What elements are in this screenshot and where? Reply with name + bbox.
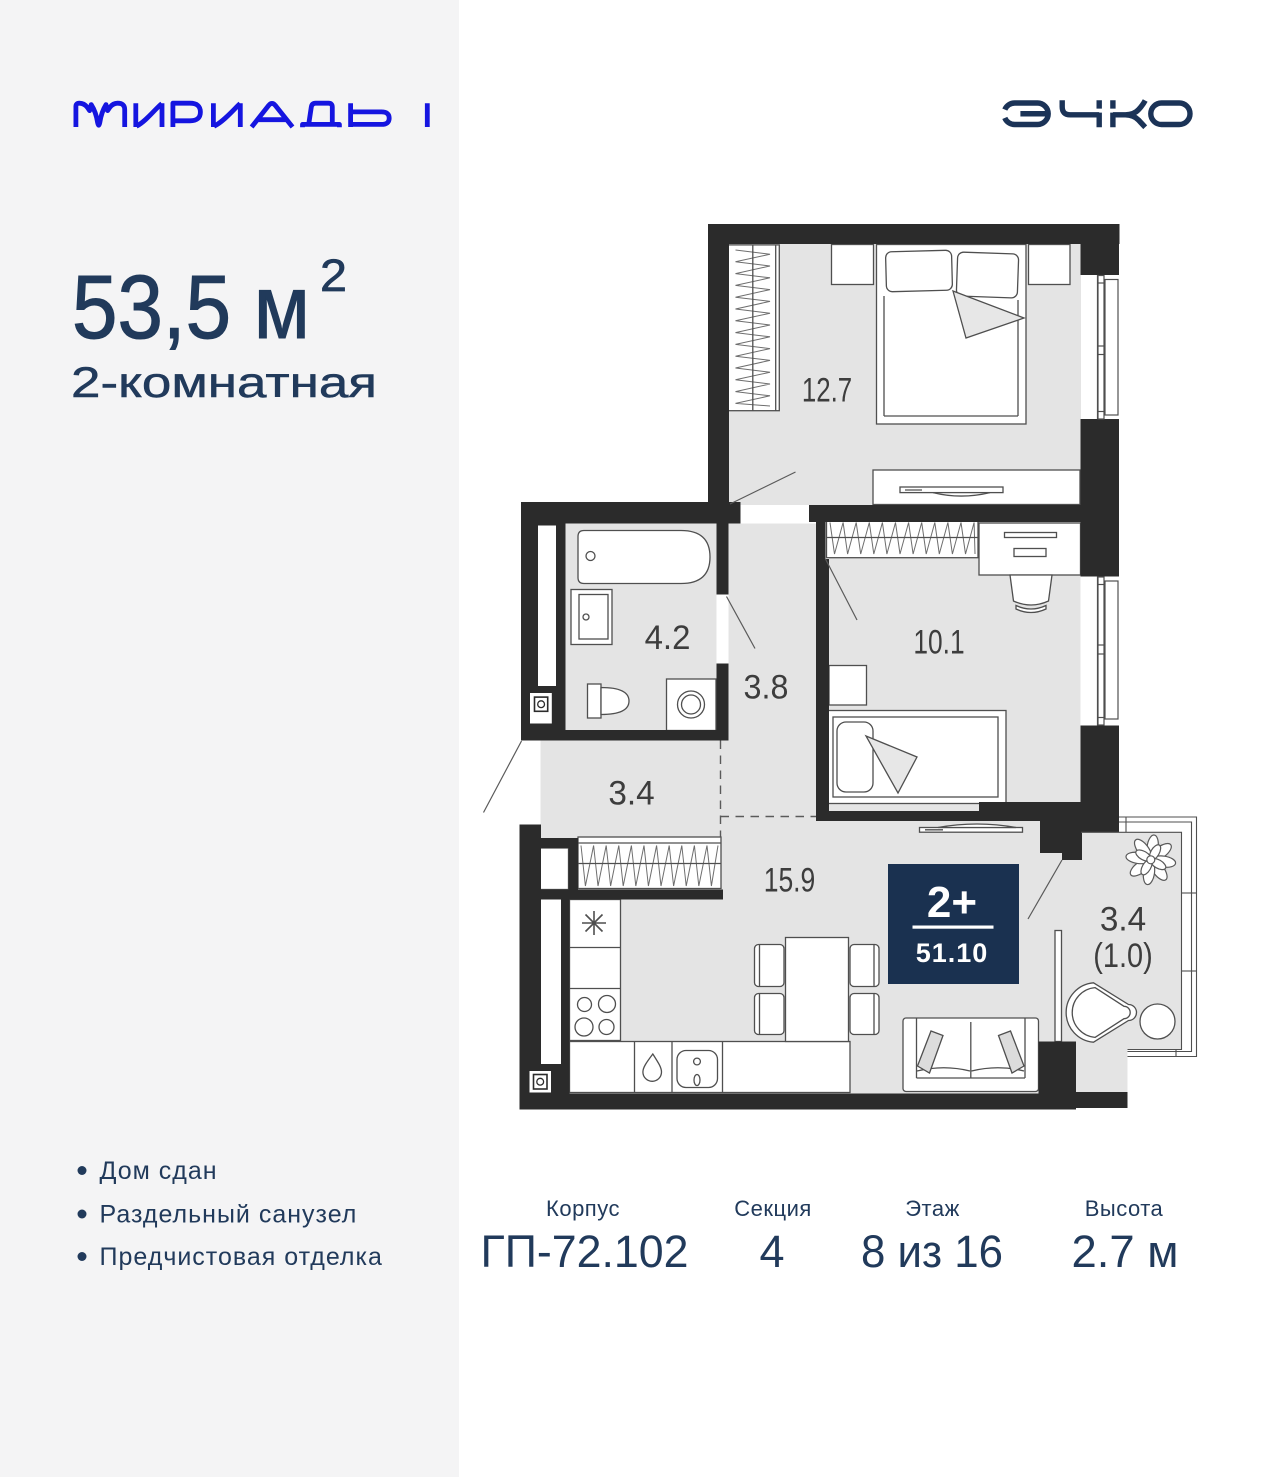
svg-text:8 из 16: 8 из 16 [861, 1226, 1003, 1277]
svg-text:4: 4 [759, 1226, 784, 1277]
svg-text:2: 2 [320, 250, 347, 301]
svg-text:Секция: Секция [734, 1196, 812, 1221]
svg-text:Корпус: Корпус [546, 1196, 620, 1221]
svg-text:ГП-72.102: ГП-72.102 [481, 1226, 689, 1277]
svg-text:10.1: 10.1 [913, 623, 964, 661]
svg-text:3.8: 3.8 [744, 669, 789, 707]
svg-text:3.4: 3.4 [1100, 901, 1146, 938]
svg-text:Раздельный санузел: Раздельный санузел [100, 1201, 358, 1229]
svg-text:2+: 2+ [927, 878, 977, 927]
svg-text:2.7 м: 2.7 м [1072, 1226, 1179, 1277]
svg-text:Дом сдан: Дом сдан [100, 1157, 218, 1185]
svg-text:51.10: 51.10 [916, 938, 989, 968]
svg-text:Высота: Высота [1085, 1196, 1164, 1221]
svg-text:Предчистовая отделка: Предчистовая отделка [100, 1243, 383, 1271]
svg-text:Этаж: Этаж [905, 1196, 960, 1221]
svg-text:2-комнатная: 2-комнатная [71, 359, 377, 407]
svg-text:4.2: 4.2 [645, 620, 691, 658]
svg-text:3.4: 3.4 [608, 775, 654, 812]
svg-text:(1.0): (1.0) [1093, 936, 1152, 975]
svg-text:12.7: 12.7 [802, 372, 852, 409]
svg-text:15.9: 15.9 [764, 861, 816, 899]
svg-text:53,5 м: 53,5 м [72, 258, 310, 358]
